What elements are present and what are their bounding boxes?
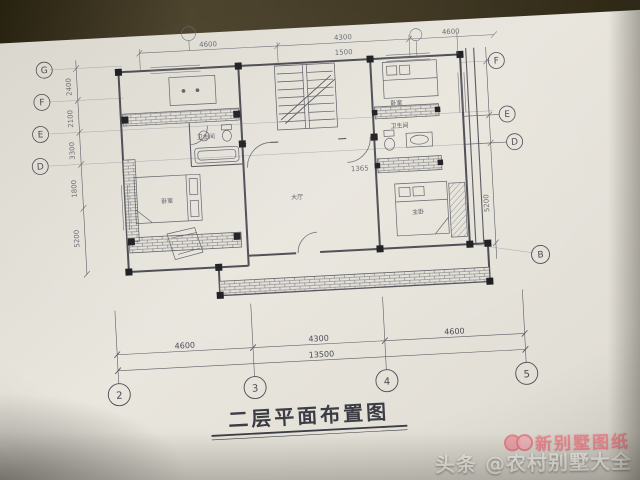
tilted-paper: 卧室 卫生间 大厅 卧室 卫生间 主卧 1365 xyxy=(0,0,640,480)
axis-bubble-B: B xyxy=(537,250,544,260)
photo-of-floor-plan: 卧室 卫生间 大厅 卧室 卫生间 主卧 1365 xyxy=(0,0,640,480)
dim-top-2: 4300 xyxy=(334,33,352,42)
dim-bottom-3: 4600 xyxy=(444,327,465,337)
room-label-hall: 大厅 xyxy=(291,193,303,202)
dim-left-5: 5200 xyxy=(73,230,82,248)
axis-bubble-right-E: E xyxy=(504,110,511,120)
axis-bubble-2: 2 xyxy=(116,391,123,402)
axis-bubble-5: 5 xyxy=(523,369,530,380)
dim-bottom-1: 4600 xyxy=(174,341,195,351)
room-label-master: 主卧 xyxy=(412,208,424,217)
dim-top-sub: 1500 xyxy=(335,48,353,57)
dim-bottom-2: 4300 xyxy=(308,334,329,344)
dim-top-1: 4600 xyxy=(199,40,217,49)
floor-plan-drawing: 卧室 卫生间 大厅 卧室 卫生间 主卧 1365 xyxy=(0,0,640,480)
axis-bubble-D: D xyxy=(37,162,45,172)
axis-bubble-right-D: D xyxy=(511,137,519,147)
axis-bubble-4: 4 xyxy=(384,377,391,388)
dim-left-2: 2100 xyxy=(66,110,75,128)
axis-bubble-F: F xyxy=(39,98,45,108)
axis-bubble-3: 3 xyxy=(252,383,259,394)
axis-bubble-E: E xyxy=(38,130,45,140)
axis-bubble-right-F: F xyxy=(494,56,500,66)
dim-left-4: 1800 xyxy=(70,180,79,198)
room-label-bedroom-left: 卧室 xyxy=(161,197,173,206)
interior-dim-1365: 1365 xyxy=(351,164,369,173)
dim-left-3: 3300 xyxy=(68,142,77,160)
dim-left-1: 2400 xyxy=(65,78,74,96)
room-label-bedroom-top-right: 卧室 xyxy=(390,98,402,107)
room-label-bath-left: 卫生间 xyxy=(197,132,215,141)
dim-top-3: 4600 xyxy=(442,27,460,36)
dim-right-1: 5200 xyxy=(482,194,491,212)
dim-bottom-total: 13500 xyxy=(309,349,335,359)
axis-bubble-G: G xyxy=(41,66,49,76)
room-label-bath-right: 卫生间 xyxy=(390,121,408,130)
